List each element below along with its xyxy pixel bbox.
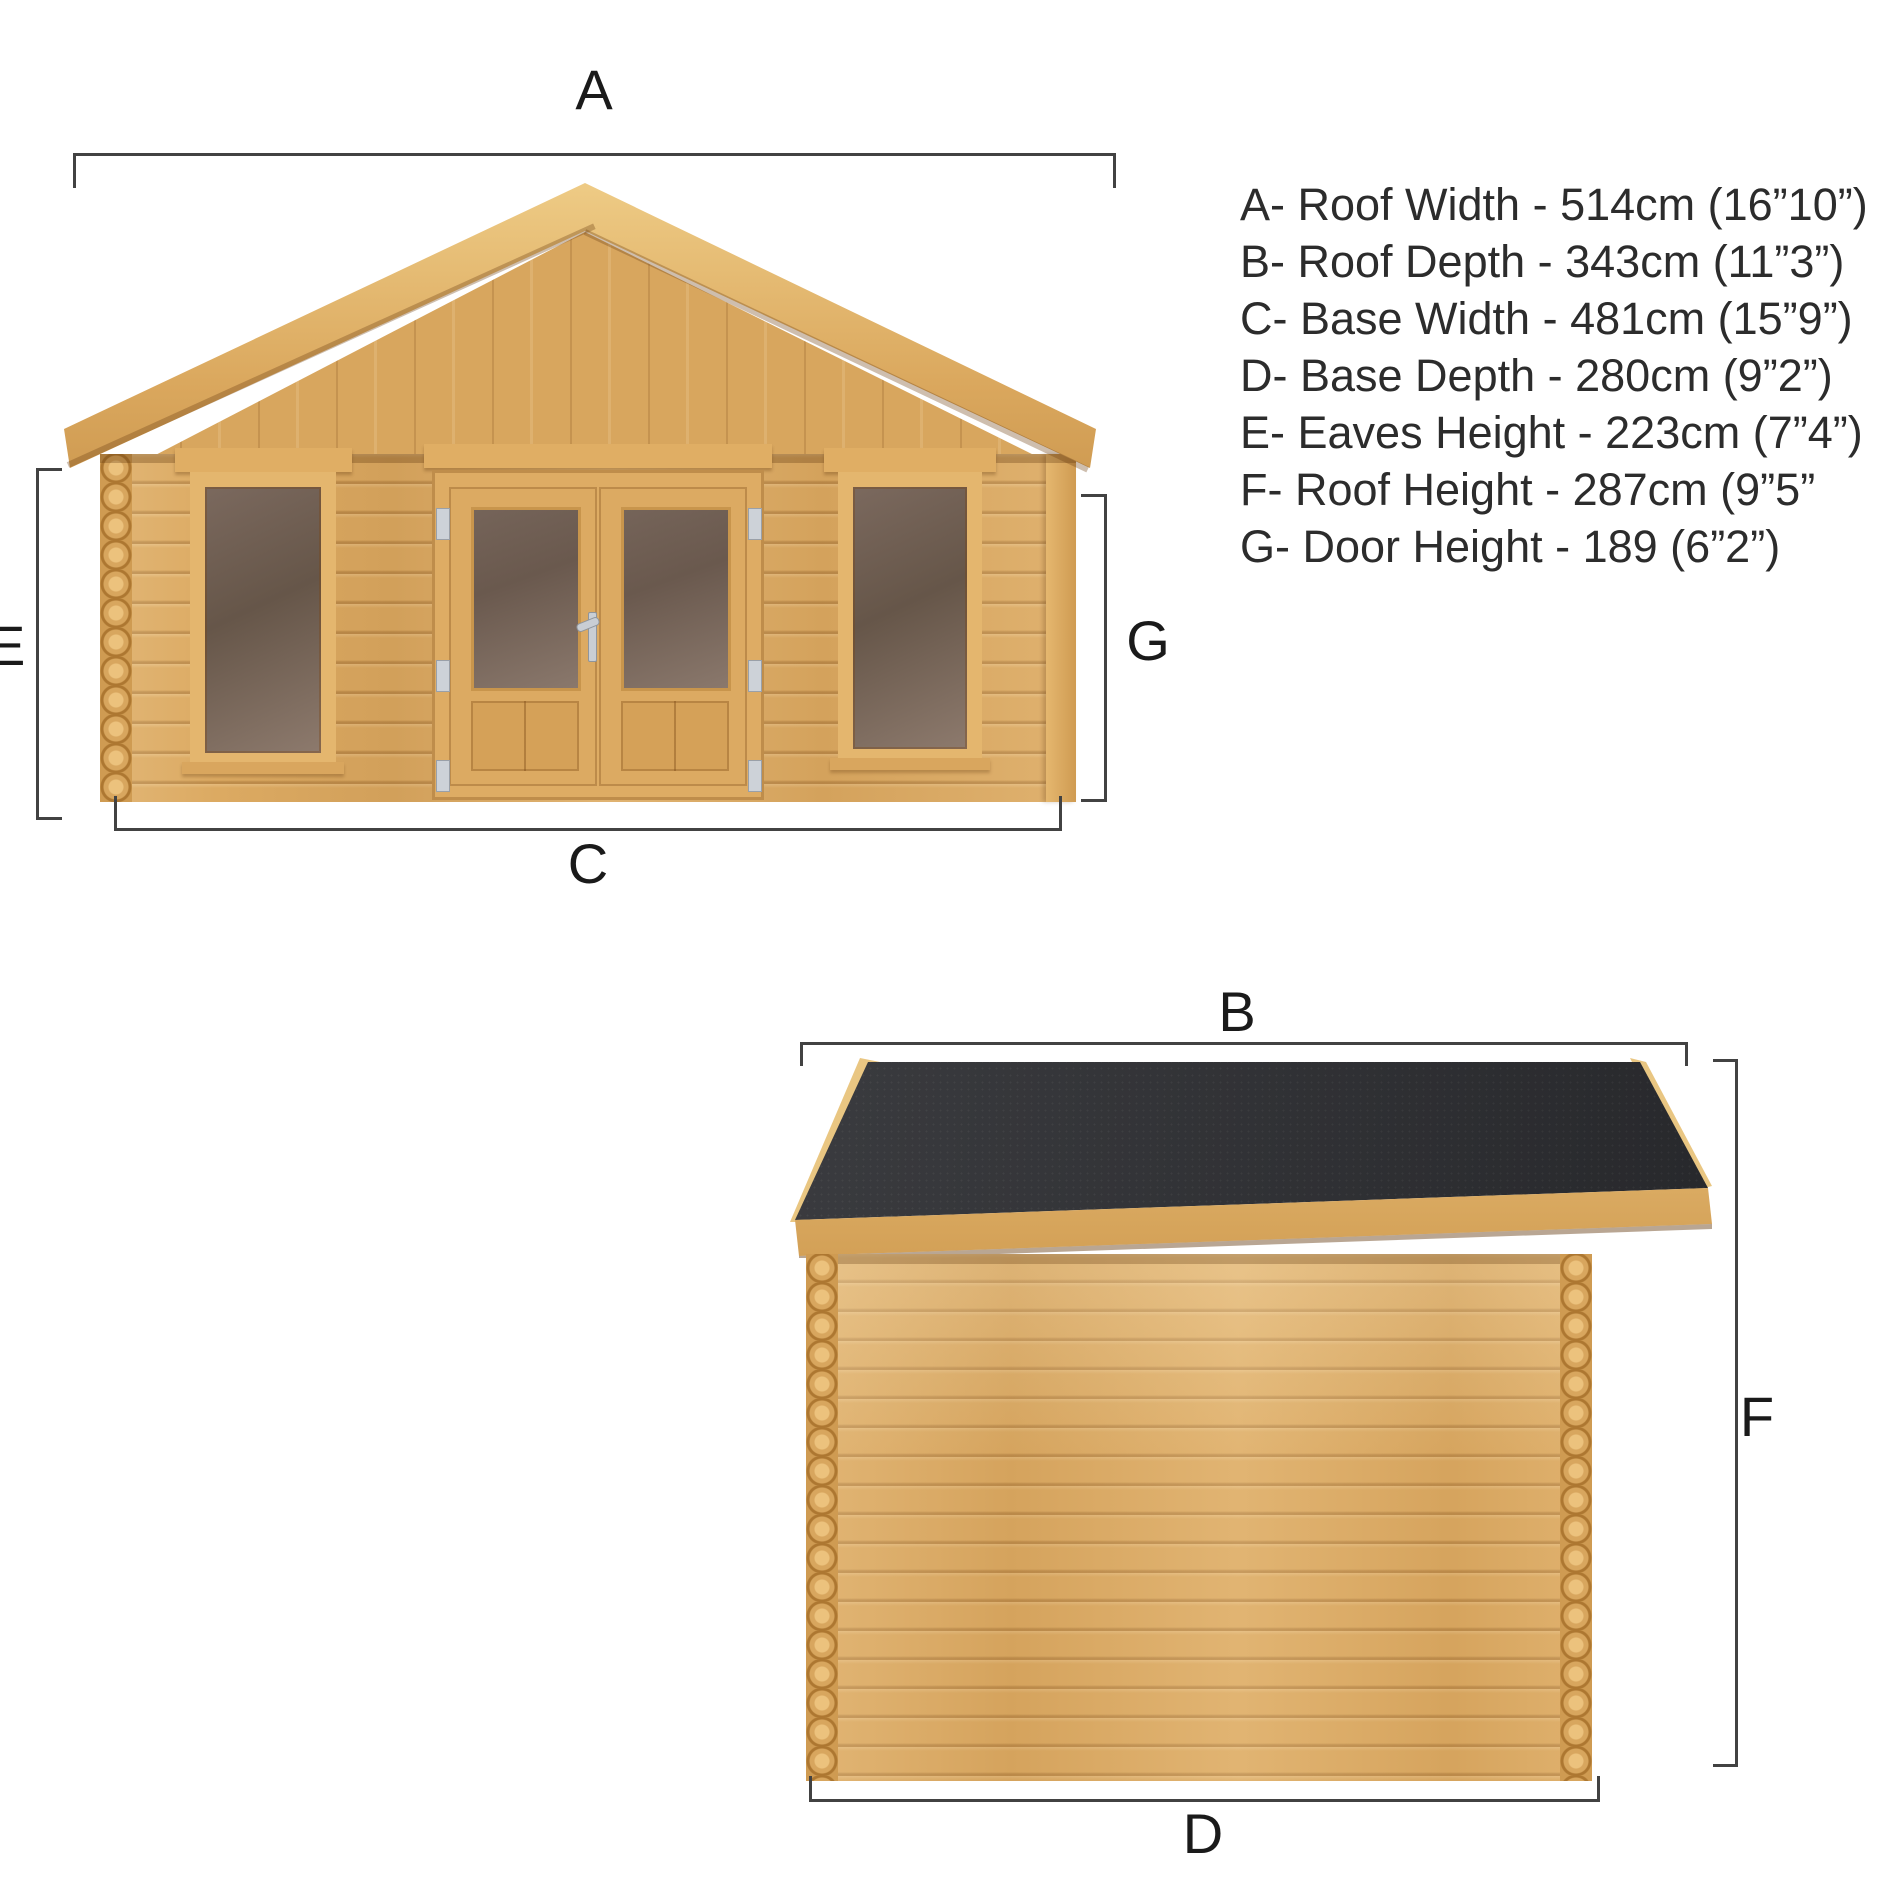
dim-tick-c-right bbox=[1059, 796, 1062, 831]
dim-tick-g-bottom bbox=[1081, 799, 1107, 802]
dim-tick-g-top bbox=[1081, 494, 1107, 497]
dim-line-e bbox=[36, 468, 39, 820]
dimension-spec-list: A- Roof Width - 514cm (16”10”) B- Roof D… bbox=[1240, 176, 1868, 575]
dim-line-g bbox=[1104, 494, 1107, 802]
side-wall-top-shadow bbox=[806, 1254, 1592, 1264]
side-elevation: B F D bbox=[0, 950, 1896, 1896]
left-window-header bbox=[175, 448, 352, 472]
dim-tick-f-top bbox=[1713, 1059, 1738, 1062]
dim-label-g: G bbox=[1114, 613, 1182, 669]
door-hinge-icon bbox=[748, 760, 762, 792]
door-leaf-left bbox=[449, 487, 597, 786]
door-hinge-icon bbox=[748, 508, 762, 540]
dim-label-d: D bbox=[1169, 1806, 1237, 1862]
spec-line-eaves-height: E- Eaves Height - 223cm (7”4”) bbox=[1240, 404, 1868, 461]
dim-tick-a-left bbox=[73, 153, 76, 188]
log-ends-front-left bbox=[100, 454, 132, 802]
dim-line-c bbox=[114, 828, 1062, 831]
log-ends-side-left bbox=[806, 1254, 838, 1781]
side-wall bbox=[806, 1254, 1592, 1781]
spec-line-base-width: C- Base Width - 481cm (15”9”) bbox=[1240, 290, 1868, 347]
left-window-sill bbox=[182, 762, 344, 774]
spec-line-base-depth: D- Base Depth - 280cm (9”2”) bbox=[1240, 347, 1868, 404]
spec-line-roof-depth: B- Roof Depth - 343cm (11”3”) bbox=[1240, 233, 1868, 290]
right-window bbox=[838, 472, 982, 764]
right-window-sill bbox=[830, 758, 990, 770]
spec-line-roof-width: A- Roof Width - 514cm (16”10”) bbox=[1240, 176, 1868, 233]
dim-tick-f-bottom bbox=[1713, 1764, 1738, 1767]
dim-label-c: C bbox=[554, 836, 622, 892]
door-leaf-right bbox=[599, 487, 747, 786]
spec-line-roof-height: F- Roof Height - 287cm (9”5” bbox=[1240, 461, 1868, 518]
door-glass-right bbox=[621, 507, 731, 691]
dim-label-b: B bbox=[1203, 984, 1271, 1040]
dim-tick-d-right bbox=[1597, 1776, 1600, 1802]
dimension-diagram: A bbox=[0, 0, 1896, 1896]
dim-tick-d-left bbox=[809, 1776, 812, 1802]
dim-tick-a-right bbox=[1113, 153, 1116, 188]
right-window-header bbox=[824, 448, 996, 472]
dim-line-f bbox=[1735, 1059, 1738, 1767]
door-panel-left bbox=[471, 701, 579, 771]
log-ends-side-right bbox=[1560, 1254, 1592, 1781]
door-glass-left bbox=[471, 507, 581, 691]
dim-line-a bbox=[73, 153, 1116, 156]
dim-label-f: F bbox=[1723, 1389, 1791, 1445]
double-door bbox=[432, 470, 764, 800]
side-roof bbox=[790, 1058, 1712, 1258]
front-corner-trim bbox=[1046, 454, 1076, 802]
door-hinge-icon bbox=[748, 660, 762, 692]
dim-tick-c-left bbox=[114, 796, 117, 831]
door-hinge-icon bbox=[436, 760, 450, 792]
front-elevation: A bbox=[0, 0, 1200, 900]
door-header bbox=[424, 444, 772, 468]
dim-tick-e-top bbox=[36, 468, 62, 471]
spec-line-door-height: G- Door Height - 189 (6”2”) bbox=[1240, 518, 1868, 575]
door-panel-right bbox=[621, 701, 729, 771]
dim-line-b bbox=[800, 1042, 1688, 1045]
door-hinge-icon bbox=[436, 508, 450, 540]
left-window bbox=[190, 472, 336, 768]
dim-label-a: A bbox=[560, 62, 628, 118]
door-hinge-icon bbox=[436, 660, 450, 692]
dim-tick-e-bottom bbox=[36, 817, 62, 820]
dim-label-e: E bbox=[0, 618, 36, 674]
